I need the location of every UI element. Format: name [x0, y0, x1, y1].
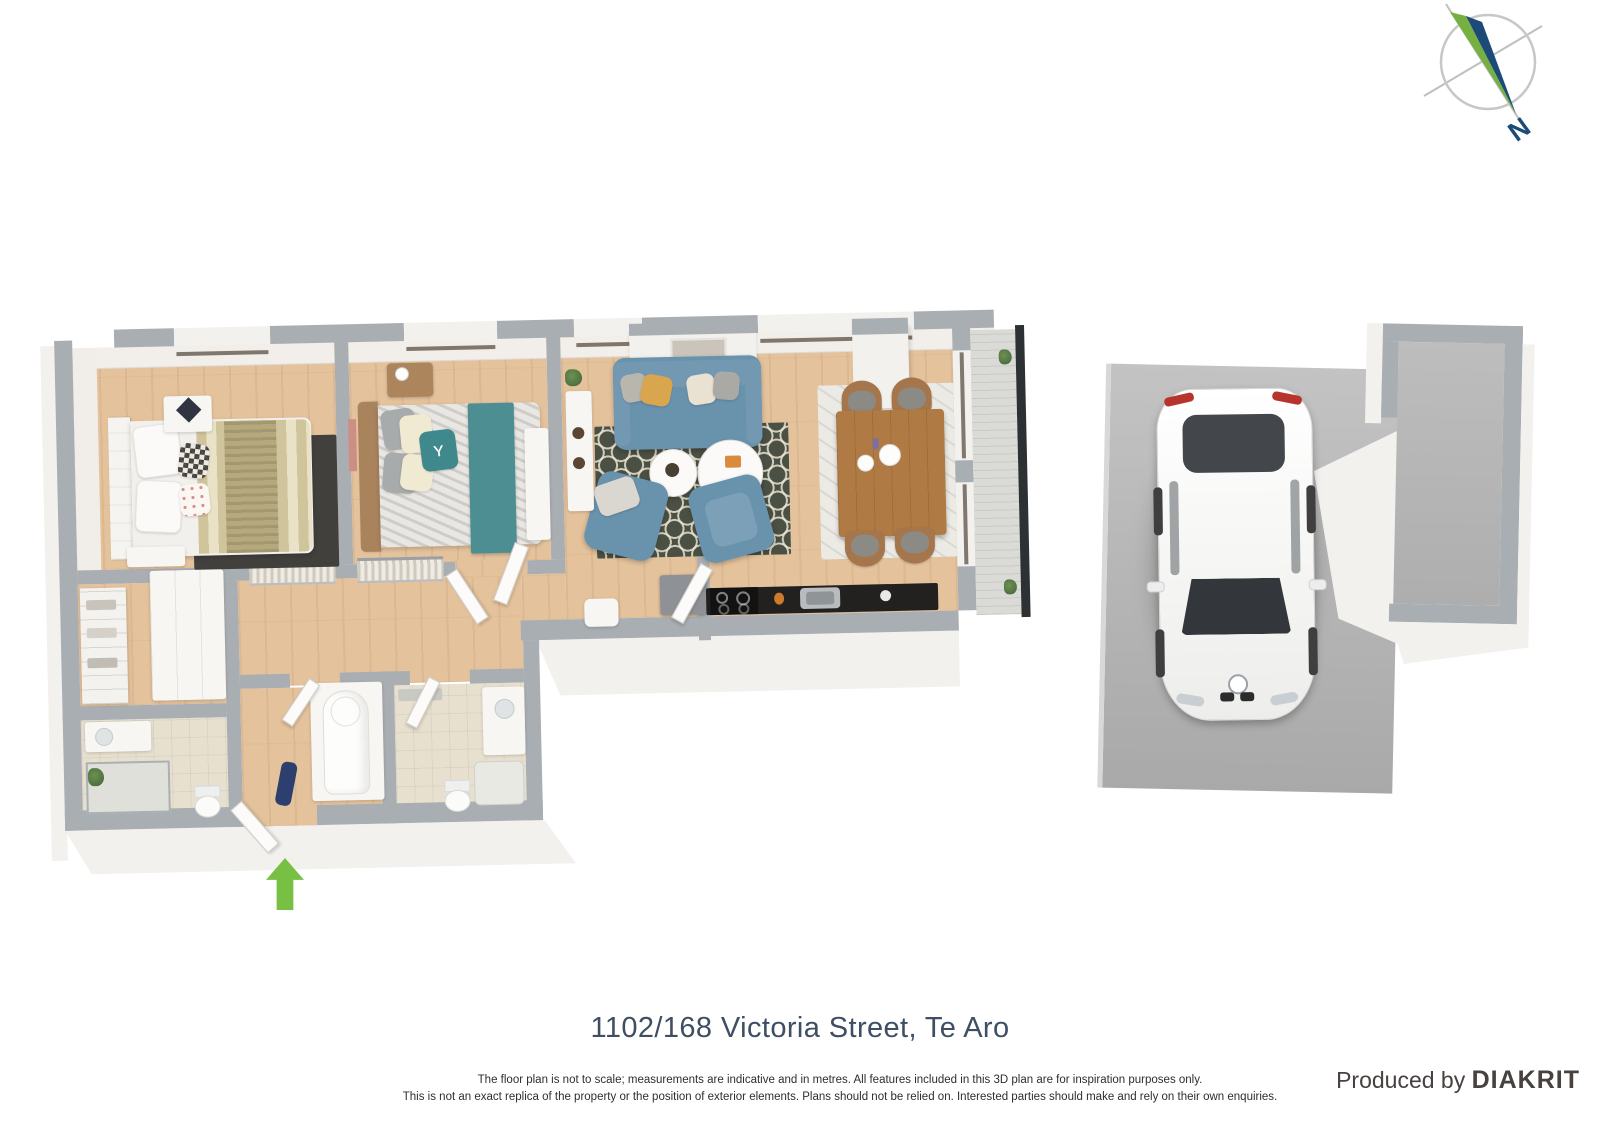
kitchen-column-cap [852, 318, 908, 335]
dining-table [836, 409, 947, 537]
apartment-floor-plan: ʏ [33, 289, 1046, 902]
compass-north-label: N [1503, 112, 1536, 148]
bed-1-pillow [135, 480, 183, 534]
kitchen-sink-basin [806, 591, 834, 605]
car-wheel [1308, 627, 1318, 675]
car-side-window [1169, 481, 1179, 575]
console-plant [565, 369, 582, 386]
car-wheel [1306, 485, 1316, 533]
produced-by: Produced by DIAKRIT [1336, 1066, 1580, 1095]
wall-pier [114, 328, 174, 347]
bar-stool [584, 598, 619, 627]
bathroom2-north-wall [470, 668, 524, 683]
sofa-pillow-yellow [639, 373, 674, 408]
bedroom-2-artwork [348, 419, 357, 471]
window-sill [404, 321, 497, 341]
bedroom-2-wardrobe [357, 556, 444, 583]
living-console [565, 391, 594, 512]
car-mirror [1309, 579, 1327, 590]
closet-clothes [87, 658, 117, 669]
window-sill [174, 326, 270, 346]
car-sunroof [1182, 414, 1285, 473]
closet-clothes [87, 628, 117, 639]
bed-2-teal-runner [468, 403, 517, 554]
entry-north-wall [240, 674, 290, 689]
car-wheel [1153, 487, 1163, 535]
compass-icon: N [1398, 0, 1558, 150]
balcony-plant [1004, 579, 1017, 594]
dining-vase [873, 438, 879, 449]
sofa-pillow [712, 371, 740, 401]
bed-1-knit-throw [224, 420, 279, 553]
bed-2-teal-pillow: ʏ [418, 428, 459, 472]
storage-wall-top [1383, 323, 1523, 344]
car-side-window [1290, 479, 1300, 573]
car-mirror [1147, 581, 1165, 592]
storage-outer-face-bottom [1390, 622, 1529, 667]
bedrooms-south-wall [335, 564, 357, 578]
bedroom-1-bench [127, 546, 185, 567]
car-wheel [1155, 629, 1165, 677]
bed-1-checked-pillow [177, 442, 211, 479]
balcony-plant [999, 349, 1012, 364]
closet-wardrobe [149, 569, 226, 701]
storage-wall-bottom [1389, 604, 1517, 625]
brand-logo: DIAKRIT [1472, 1066, 1580, 1094]
car [1156, 387, 1315, 719]
produced-by-label: Produced by [1336, 1067, 1465, 1093]
car-windshield [1181, 578, 1292, 636]
balcony-floor [970, 329, 1021, 615]
bedrooms-south-wall [527, 559, 565, 574]
bedroom-2-console [524, 428, 551, 541]
coffee-table-book [725, 455, 741, 467]
bedroom-2-nightstand [387, 362, 434, 397]
sofa-arm [745, 359, 763, 443]
car-grille [1240, 692, 1254, 701]
left-wall-inner-face [72, 348, 101, 570]
shower-2 [474, 760, 525, 805]
bed-1-floral-pillow [178, 482, 211, 517]
bathroom-plant [88, 768, 104, 786]
bathroom2-north-wall [394, 671, 410, 685]
wall-pier [497, 319, 574, 339]
bathroom-2-vanity [482, 686, 526, 755]
closet-clothes [86, 600, 116, 611]
bed-1-headboard [108, 417, 133, 559]
lower-wing-right-wall [523, 640, 543, 820]
page-title: 1102/168 Victoria Street, Te Aro [0, 1012, 1600, 1045]
car-grille [1220, 692, 1234, 701]
storage-wall-left [1381, 341, 1399, 417]
floor-plan-page: N [0, 0, 1600, 1131]
garage-area [1075, 295, 1556, 835]
kitchen-outer-face [536, 631, 960, 697]
storage-floor [1393, 342, 1504, 606]
